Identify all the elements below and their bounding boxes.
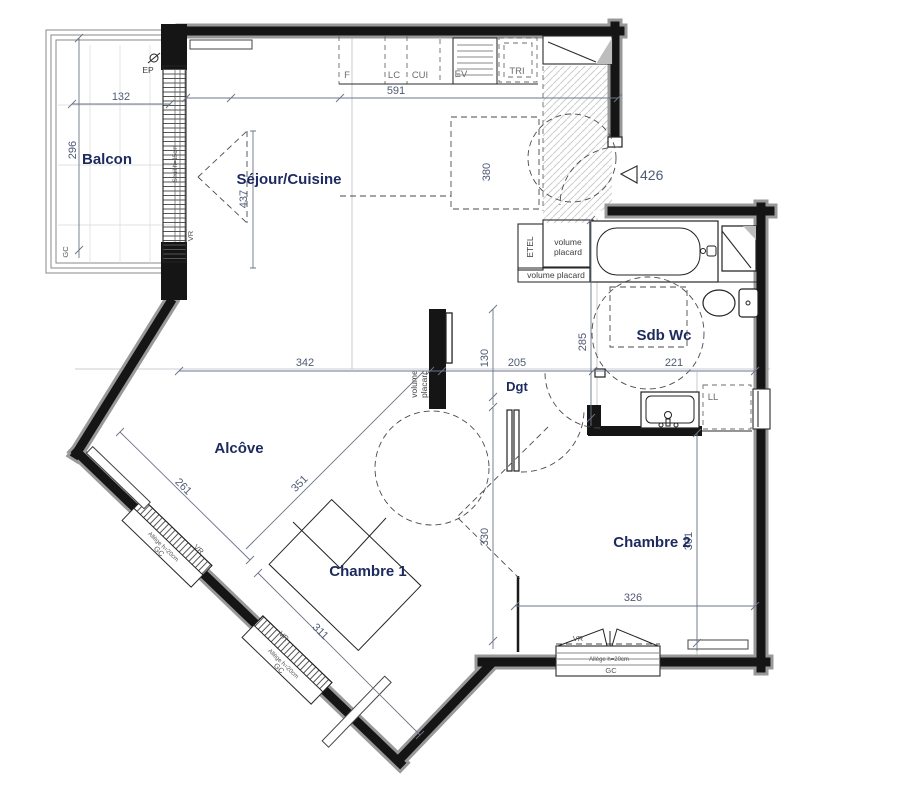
etel-label: ETEL (525, 236, 535, 258)
placard-label: placard (554, 247, 582, 257)
kitchen-ev-label: EV (455, 69, 468, 80)
ch2-door[interactable] (507, 410, 584, 472)
volume-placard-hatched: volume placard (543, 220, 593, 267)
dim-alcove-diag: 261 (172, 476, 193, 497)
floor-plan-svg: Seuil h=15cm VR Allège h=20cm GC Allège … (0, 0, 901, 800)
dim-porte-sejour: 437 (238, 190, 250, 208)
window-ch2-south: VR Allège h=20cm GC (556, 629, 660, 676)
room-label-sejour: Séjour/Cuisine (236, 171, 341, 188)
allege-label-ch2: Allège h=20cm (589, 657, 629, 663)
volume-label: volume (554, 237, 582, 247)
ll-label: LL (708, 392, 719, 403)
kitchen-units: F LC CUI EV TRI (339, 36, 538, 84)
balcony-bay-window: Seuil h=15cm (163, 66, 186, 262)
dim-sdb-h: 285 (577, 333, 589, 351)
washer-spot-ll: LL (703, 385, 751, 429)
ep-label: EP (142, 65, 154, 75)
dim-ch1-diag: 311 (310, 621, 331, 642)
entry-marker-label: 426 (640, 167, 664, 183)
kitchen-lc-label: LC (388, 70, 400, 81)
kitchen-cui-label: CUI (412, 70, 428, 81)
entry-marker-426: 426 (621, 166, 664, 183)
gc-label-balcony: GC (61, 246, 70, 258)
entry-hatch (543, 66, 612, 223)
vr-label-balcony: VR (186, 230, 195, 241)
bathroom-sink (641, 392, 699, 428)
room-label-sdb: Sdb Wc (637, 327, 692, 344)
window-right-wall (753, 389, 770, 429)
dim-dgt-l: 205 (508, 357, 526, 369)
gc-label-ch2: GC (605, 666, 617, 675)
dim-balcon-w: 132 (112, 91, 130, 103)
dim-ilot: 380 (481, 163, 493, 181)
volume-placard-label: volume placard (527, 270, 585, 280)
toilet (703, 289, 758, 317)
dim-ch2-w: 326 (624, 592, 642, 604)
ch1-door[interactable] (446, 313, 452, 363)
room-label-alcove: Alcôve (214, 440, 263, 457)
wall-pillar-placard (429, 309, 446, 409)
floor-plan-page: Seuil h=15cm VR Allège h=20cm GC Allège … (0, 0, 901, 800)
dim-sdb-w: 221 (665, 357, 683, 369)
dim-dgt-w: 130 (479, 349, 491, 367)
vr-label-ch2: VR (573, 634, 584, 643)
dim-alcove-top: 342 (296, 357, 314, 369)
bathtub (590, 221, 718, 282)
corridor-guides (375, 411, 548, 579)
kitchen-f-label: F (344, 70, 350, 81)
room-label-balcon: Balcon (82, 151, 132, 168)
entry-arrow-icon (621, 166, 637, 183)
dim-ch1-h: 330 (479, 528, 491, 546)
kitchen-tri-label: TRI (509, 66, 524, 77)
room-label-dgt: Dgt (506, 379, 528, 394)
dim-balcon-h: 296 (67, 141, 79, 159)
radiator-sejour (190, 40, 252, 49)
room-label-ch2: Chambre 2 (613, 534, 691, 551)
dim-cuisine: 591 (387, 85, 405, 97)
volume-placard-box: volume placard (518, 268, 593, 282)
dim-alcove-ch1: 351 (289, 473, 310, 494)
etel-closet: ETEL (518, 224, 543, 270)
wall-pillar-balcony-top (161, 24, 187, 70)
room-label-ch1: Chambre 1 (329, 563, 407, 580)
entry-window (543, 36, 612, 64)
seuil-label: Seuil h=15cm (173, 146, 179, 183)
